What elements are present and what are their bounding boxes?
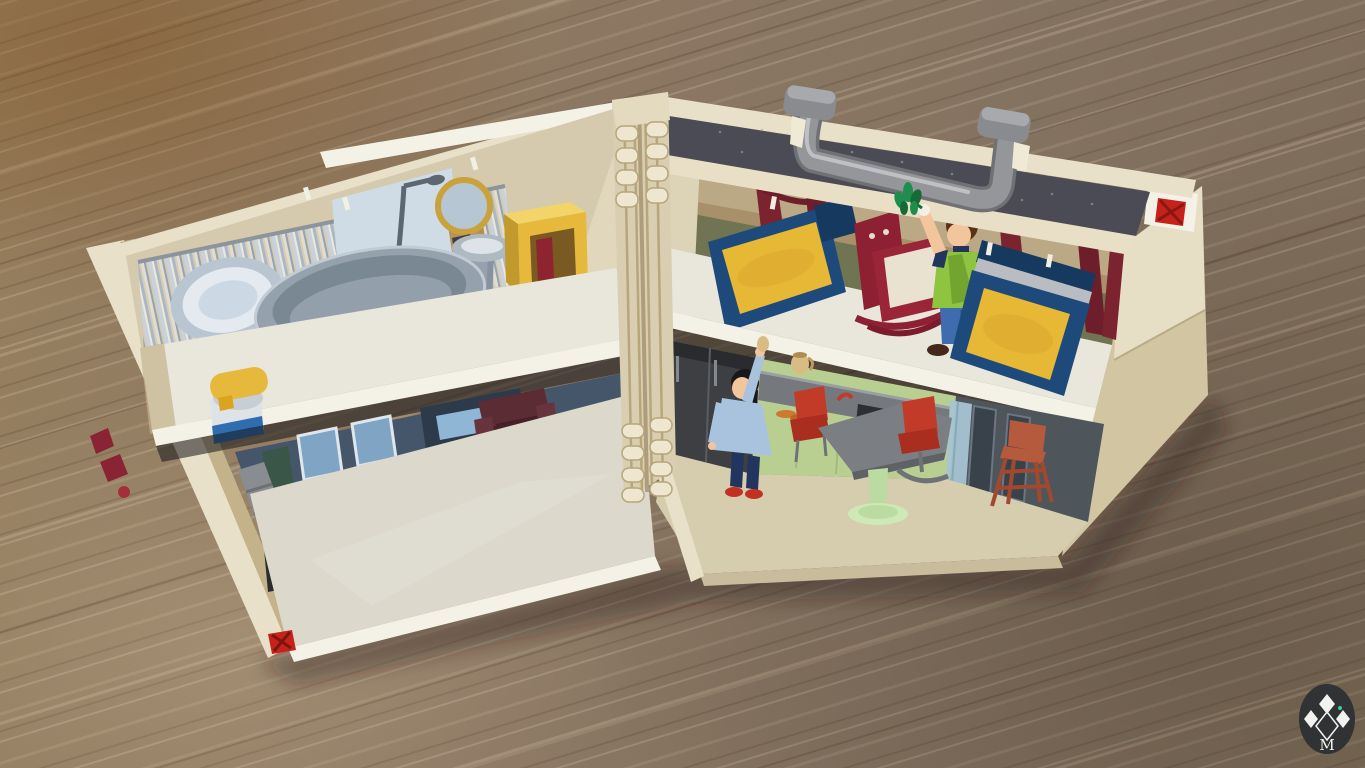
- watermark-accent-dot: [1338, 706, 1342, 710]
- dollhouse-scene: M: [0, 0, 1365, 768]
- window-pane: [968, 406, 996, 496]
- fridge-handle-2: [714, 360, 717, 386]
- photo-playmobil-dollhouse: M: [0, 0, 1365, 768]
- left-edge-latch: [90, 428, 130, 498]
- left-half: [86, 100, 661, 662]
- fridge-handle: [676, 356, 679, 382]
- watermark-logo: M: [1299, 684, 1355, 754]
- watermark-monogram: M: [1319, 736, 1334, 754]
